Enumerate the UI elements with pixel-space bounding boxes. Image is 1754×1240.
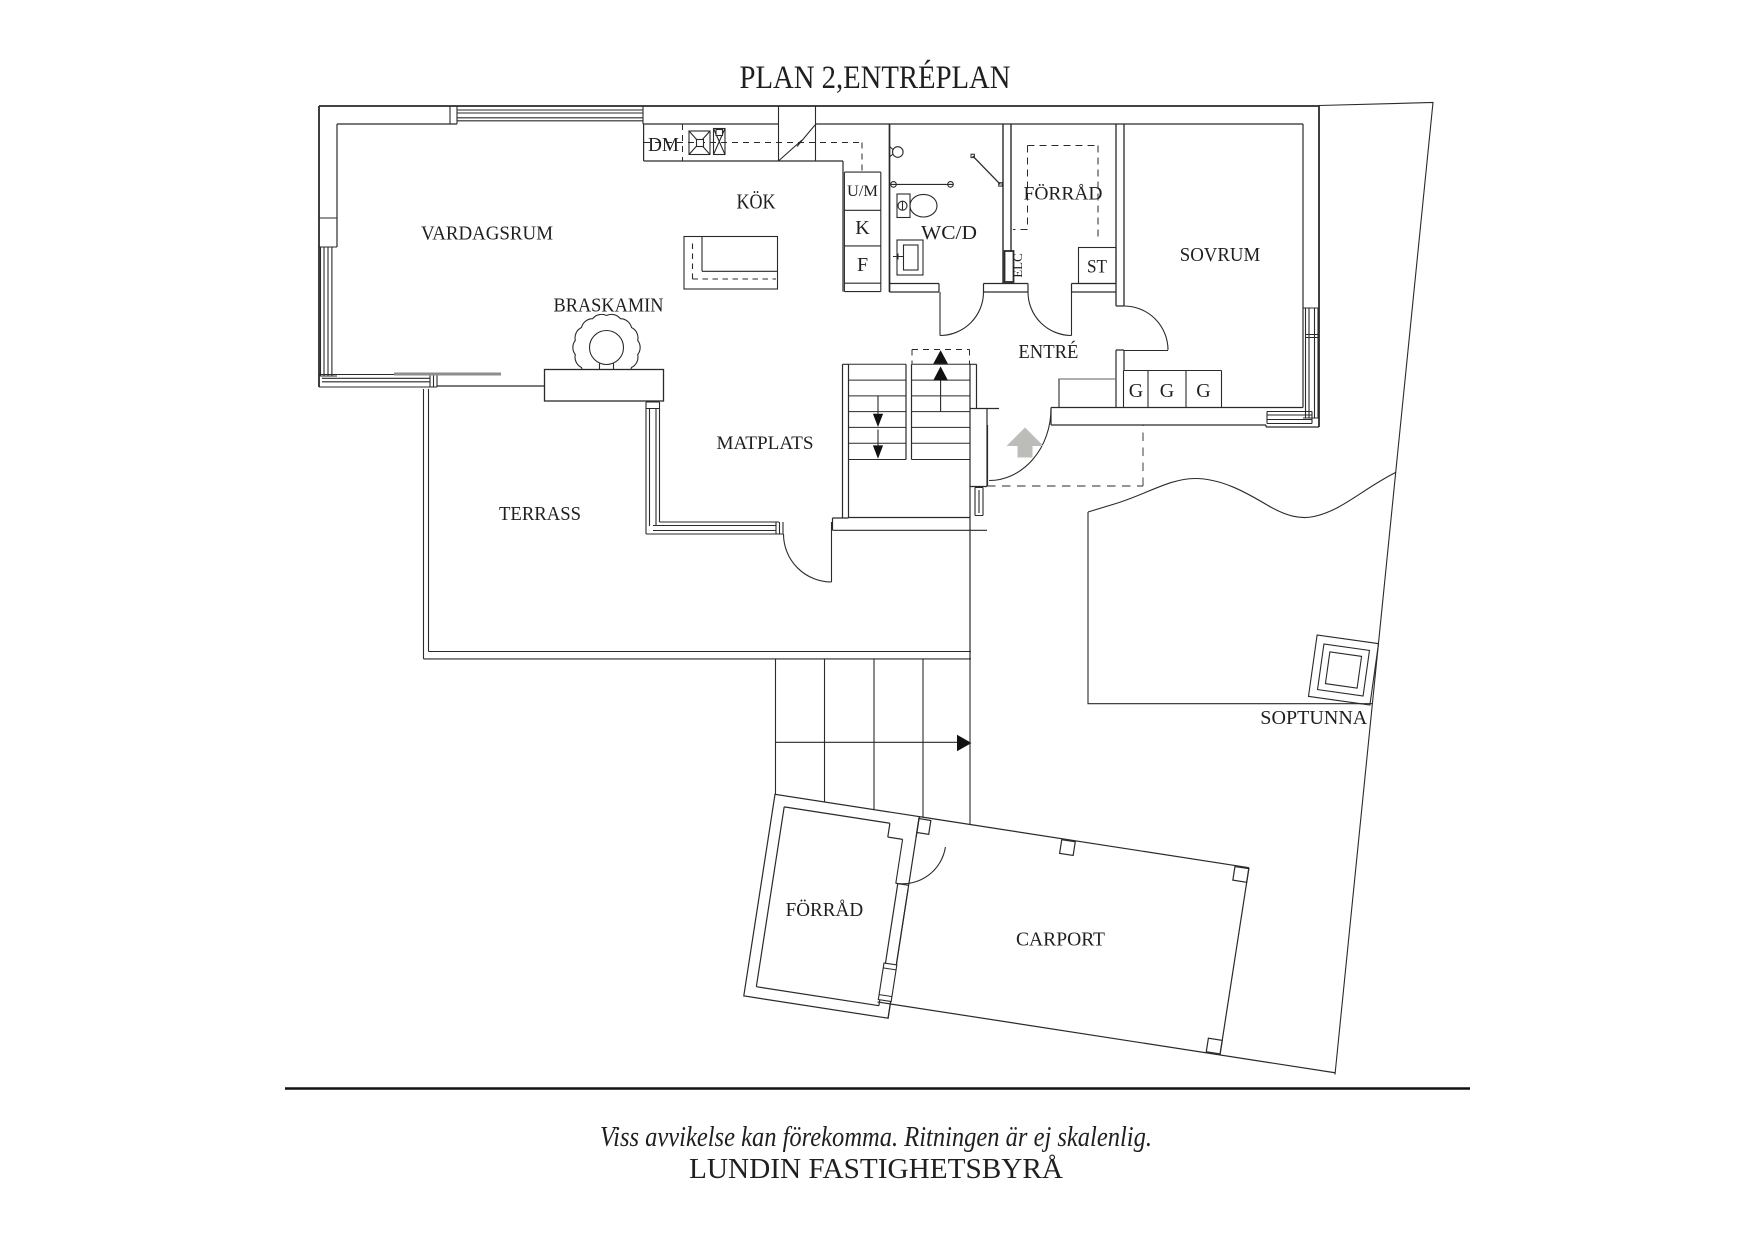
svg-text:SOVRUM: SOVRUM	[1180, 244, 1261, 266]
svg-text:G: G	[1129, 380, 1143, 402]
svg-text:ELC: ELC	[1010, 253, 1025, 278]
svg-text:G: G	[1160, 380, 1174, 402]
svg-text:VARDAGSRUM: VARDAGSRUM	[421, 223, 553, 245]
svg-text:KÖK: KÖK	[737, 190, 776, 214]
svg-text:ENTRÉ: ENTRÉ	[1018, 340, 1078, 363]
svg-text:BRASKAMIN: BRASKAMIN	[554, 295, 664, 317]
svg-text:ST: ST	[1087, 257, 1107, 278]
svg-text:MATPLATS: MATPLATS	[717, 434, 814, 454]
svg-text:PLAN 2,ENTRÉPLAN: PLAN 2,ENTRÉPLAN	[740, 59, 1011, 96]
svg-text:FÖRRÅD: FÖRRÅD	[786, 898, 864, 921]
svg-text:FÖRRÅD: FÖRRÅD	[1024, 184, 1103, 205]
svg-text:U/M: U/M	[847, 183, 878, 200]
svg-text:CARPORT: CARPORT	[1016, 929, 1105, 951]
svg-text:K: K	[855, 217, 870, 239]
svg-text:TERRASS: TERRASS	[499, 503, 581, 525]
svg-text:F: F	[857, 254, 868, 276]
svg-text:G: G	[1196, 380, 1210, 402]
svg-text:SOPTUNNA: SOPTUNNA	[1260, 707, 1368, 729]
svg-text:Viss avvikelse kan förekomma.: Viss avvikelse kan förekomma. Ritningen …	[600, 1121, 1152, 1153]
svg-text:DM: DM	[648, 134, 679, 156]
svg-text:LUNDIN FASTIGHETSBYRÅ: LUNDIN FASTIGHETSBYRÅ	[689, 1153, 1063, 1185]
svg-text:WC/D: WC/D	[921, 222, 977, 244]
